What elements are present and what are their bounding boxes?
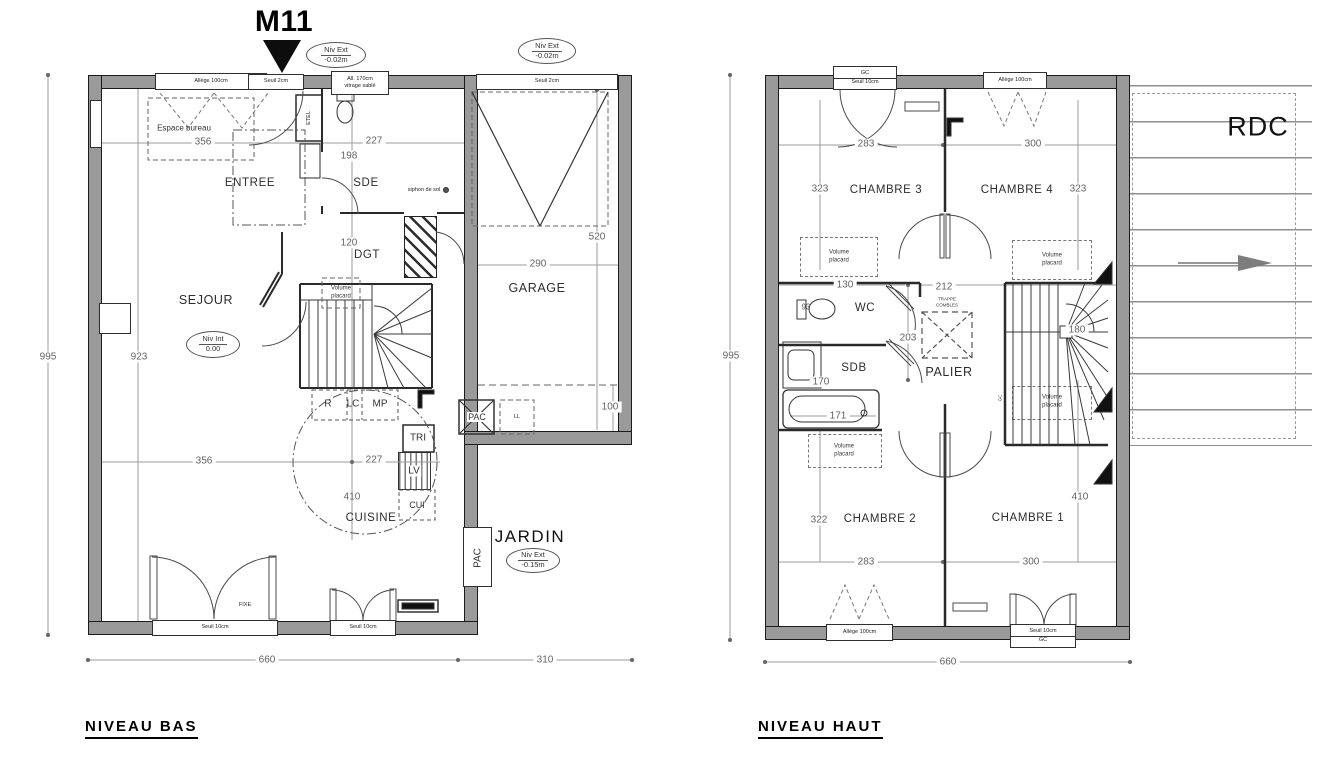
dim-323-left: 323 [809,184,832,195]
room-sdb: SDB [841,362,866,374]
bas-door-arcs [150,91,464,621]
dim-923: 923 [128,352,151,363]
wall-left-bas [88,75,102,635]
volume-placard-tl: Volume placard [829,250,849,265]
garage-door-seuil: Seuil 2cm [476,74,618,90]
haut-partitions [779,89,1108,626]
dim-323-right: 323 [1067,184,1090,195]
opening-label: All. 170cm [347,76,373,83]
dim-995-bas: 995 [37,352,60,363]
pac-garage-label: PAC [467,412,487,422]
dim-227-mid: 227 [363,455,386,466]
dim-93: 93 [799,303,814,312]
floor-plan-sheet: RDC [0,0,1340,784]
vp-line2: placard [1042,260,1062,268]
room-sejour: SEJOUR [179,293,233,307]
dim-171: 171 [827,411,850,422]
tri-box-label: TRI [410,433,426,444]
wall-right-garage [618,75,632,445]
opening-label: Seuil 2cm [535,78,559,85]
siphon-label: siphon de sol [408,187,440,193]
badge-line2: -0.15m [521,561,544,570]
room-wc: WC [855,302,875,314]
opening-label2: vitrage sablé [344,83,375,90]
dim-100: 100 [599,402,622,413]
dim-130: 130 [834,280,857,291]
roof-dashed-outline [1132,93,1296,439]
gc-stairs-label: GC [998,395,1003,402]
etel-closet-label: ETEL [306,111,312,125]
room-palier: PALIER [925,365,972,379]
niv-ext-badge-entrance: Niv Ext -0.02m [306,42,366,68]
haut-stairs [1005,283,1108,445]
vp-line1: Volume [829,250,849,258]
dim-660-haut: 660 [937,657,960,668]
room-chambre1: CHAMBRE 1 [992,512,1065,524]
haut-casement-symbols [830,92,1046,619]
dim-212: 212 [933,282,956,293]
dim-120: 120 [338,238,361,249]
bas-dim-lines [48,75,632,660]
cabinet-lc: LC [347,399,360,410]
badge-line2: -0.02m [324,56,347,65]
opening-label: Seuil 10cm [349,624,376,631]
dim-180: 180 [1066,325,1089,336]
fixed-pane-label: FIXE [239,602,251,608]
title-niveau-haut: NIVEAU HAUT [758,718,883,739]
pac-jardin-label: PAC [472,548,485,568]
french-door-seuil-right: Seuil 10cm [330,620,396,636]
ll-label: LL [514,414,520,420]
room-dgt: DGT [354,249,380,261]
dim-356-mid: 356 [193,456,216,467]
opening-label: Seuil 10cm [201,624,228,631]
door-seuil-2cm: Seuil 2cm [248,74,304,90]
room-chambre3: CHAMBRE 3 [850,184,923,196]
opening-label2: Seuil 10cm [851,79,878,86]
opening-label: Allège 100cm [194,78,227,85]
badge-line2: -0.02m [535,52,558,61]
window-allege-top-haut: Allège 100cm [983,72,1047,89]
marker-m11-triangle-icon [263,40,301,73]
title-niveau-bas: NIVEAU BAS [85,718,198,739]
window-left-wall-2 [99,303,131,334]
dim-410-haut: 410 [1069,492,1092,503]
vp-line1: Volume [1042,395,1062,403]
room-garage: GARAGE [508,281,565,295]
opening-label2: GC [1039,637,1047,644]
trappe-combles-label: TRAPPE COMBLES [936,296,958,307]
wall-right-haut [1116,75,1130,640]
vp-line1: Volume [331,286,351,294]
badge-line2: 0.00 [206,345,221,354]
vp-line2: placard [331,293,351,301]
dim-356-top: 356 [192,137,215,148]
niv-ext-badge-jardin: Niv Ext -0.15m [506,548,560,573]
niv-int-badge-sejour: Niv Int 0.00 [186,331,240,358]
window-sde-sable: All. 170cm vitrage sablé [331,71,389,95]
wall-bottom-garage [464,431,632,445]
room-sde: SDE [353,177,378,189]
french-door-seuil-left: Seuil 10cm [152,620,278,636]
cabinet-mp: MP [373,399,388,410]
haut-door-arcs [838,90,1076,626]
dim-300-top: 300 [1022,139,1045,150]
opening-label: GC [834,70,896,78]
dim-227-top: 227 [363,136,386,147]
vp-line2: placard [829,257,849,265]
wall-bottom-bas [88,621,478,635]
dim-198: 198 [338,151,361,162]
niv-ext-badge-garage: Niv Ext -0.02m [518,38,576,64]
volume-placard-br: Volume placard [1042,395,1062,410]
opening-label: Allège 100cm [998,77,1031,84]
dim-300-bottom: 300 [1020,557,1043,568]
dim-995-haut: 995 [720,351,743,362]
pac-jardin-box: PAC [463,527,492,587]
dgt-hatched-duct [404,216,437,278]
dim-283-top: 283 [855,139,878,150]
vp-line2: placard [1042,402,1062,410]
trappe-line2: COMBLES [936,302,958,308]
door-seuil-gc-bottom: Seuil 10cm GC [1010,624,1076,648]
dim-520: 520 [586,232,609,243]
wall-top-haut [765,75,1130,89]
volume-placard-bl: Volume placard [834,444,854,459]
wall-left-haut [765,75,779,640]
cabinet-r: R [324,399,331,410]
opening-label: Seuil 2cm [264,78,288,85]
dim-283-bottom: 283 [855,557,878,568]
bas-stairs [300,284,432,388]
bas-fixtures [104,93,449,612]
door-gc-seuil-top: GC Seuil 10cm [833,66,897,90]
room-chambre2: CHAMBRE 2 [844,513,917,525]
cui-label: CUI [409,500,425,510]
vp-line1: Volume [1042,253,1062,261]
dim-410-bas: 410 [341,492,364,503]
dim-322: 322 [808,515,831,526]
room-entree: ENTREE [225,177,275,189]
dim-660-bas: 660 [256,655,279,666]
room-cuisine: CUISINE [346,512,397,524]
vp-line2: placard [834,451,854,459]
vp-line1: Volume [834,444,854,452]
volume-placard-tr: Volume placard [1042,253,1062,268]
haut-trappe [922,312,972,358]
dim-290: 290 [527,259,550,270]
lv-label: LV [407,466,421,477]
room-espace-bureau: Espace bureau [157,124,211,133]
window-left-wall [90,100,102,148]
dim-203: 203 [897,333,920,344]
rdc-label: RDC [1227,112,1289,143]
dim-310: 310 [534,655,557,666]
marker-m11-label: M11 [255,5,313,39]
volume-placard-bas: Volume placard [331,286,351,301]
dim-170: 170 [810,377,833,388]
room-chambre4: CHAMBRE 4 [981,184,1054,196]
room-jardin: JARDIN [495,527,565,547]
window-allege-bottom-haut: Allège 100cm [826,624,893,641]
opening-label: Seuil 10cm [1011,628,1075,636]
opening-label: Allège 100cm [843,629,876,636]
